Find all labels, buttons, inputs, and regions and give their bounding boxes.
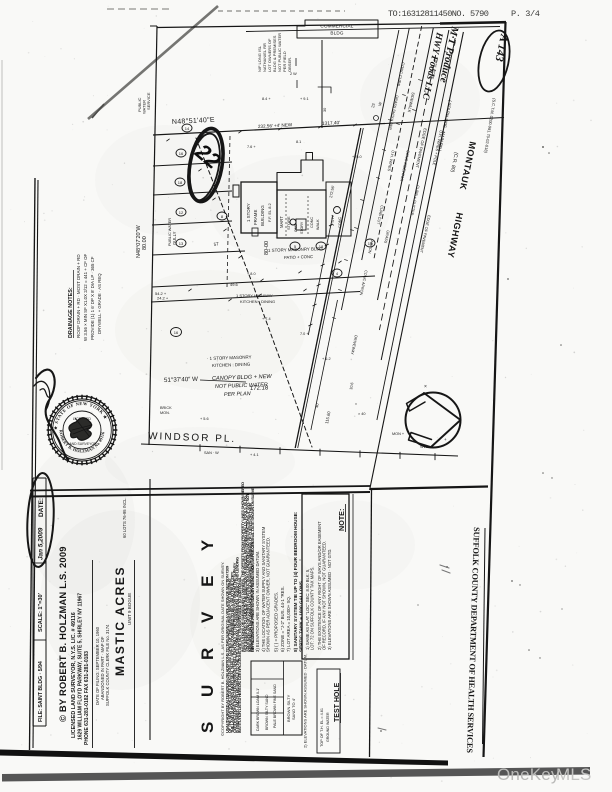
- svg-text:5) ( ) = PROPOSED GRADE: 5) ( ) = PROPOSED GRADES.: [274, 592, 279, 652]
- svg-text:TO:16312811450NO. 5790: TO:16312811450NO. 5790: [388, 9, 489, 19]
- svg-text:GULLY: GULLY: [172, 231, 177, 245]
- svg-text:S U R V E Y: S U R V E Y: [198, 530, 217, 733]
- svg-text:STORY: STORY: [300, 221, 304, 234]
- svg-text:PATIO + CONC: PATIO + CONC: [284, 254, 313, 260]
- svg-text:W 3.56 × MIN SF X1.0X 2/12 = 4: W 3.56 × MIN SF X1.0X 2/12 = 441 + CF OF: [83, 253, 88, 341]
- svg-text:UNIT 9 BOGUE: UNIT 9 BOGUE: [127, 593, 132, 625]
- svg-text:1 STORY: 1 STORY: [246, 203, 251, 222]
- svg-text:18: 18: [319, 244, 324, 249]
- svg-text:16: 16: [174, 330, 179, 335]
- svg-text:OBSER.: OBSER.: [287, 57, 292, 72]
- svg-text:SAND TO 4′: SAND TO 4′: [291, 698, 296, 720]
- svg-text:SHOWN AS PER ADJACENT OWNER, N: SHOWN AS PER ADJACENT OWNER, NOT GUARANT…: [266, 537, 271, 652]
- svg-text:KITCHEN · DINING: KITCHEN · DINING: [240, 299, 275, 304]
- svg-text:80.00: 80.00: [142, 236, 148, 250]
- svg-text:16: 16: [179, 151, 184, 156]
- svg-text:SUFFOLK COUNTY CLERK FILE No.: SUFFOLK COUNTY CLERK FILE No. 3174: [105, 624, 110, 706]
- svg-text:SCALE: 1″=30′: SCALE: 1″=30′: [38, 592, 44, 632]
- svg-text:SAN · W: SAN · W: [204, 451, 219, 455]
- svg-text:FILE: SAINT BLDG · 5/94: FILE: SAINT BLDG · 5/94: [38, 661, 44, 722]
- svg-text:×: ×: [424, 384, 427, 390]
- svg-text:OneKey: OneKey: [497, 765, 560, 784]
- svg-text:3) ELEVATIONS ARE SHOWN ASSUME: 3) ELEVATIONS ARE SHOWN ASSUMED · NOT GT…: [327, 549, 332, 650]
- svg-text:MART: MART: [279, 216, 284, 228]
- svg-text:× 40: × 40: [358, 412, 366, 416]
- svg-text:7.0 +: 7.0 +: [300, 332, 309, 336]
- svg-text:3) ELEVATIONS ARE SHOWN IN ASS: 3) ELEVATIONS ARE SHOWN IN ASSUMED DATUM…: [255, 551, 260, 652]
- svg-text:LICENSED LAND SURVEYOR, N.Y: LICENSED LAND SURVEYOR, N.Y.S. LIC. # 49…: [71, 612, 77, 738]
- svg-text:30: 30: [323, 108, 327, 112]
- svg-text:2) ELEVATIONS ARE SHOWN ASSUME: 2) ELEVATIONS ARE SHOWN ASSUMED · DATUM: [303, 655, 308, 748]
- svg-text:BUILDING: BUILDING: [260, 205, 265, 226]
- svg-text:Jan 5,2009: Jan 5,2009: [38, 527, 45, 560]
- svg-text:2 W: 2 W: [290, 72, 297, 76]
- svg-text:DRYWELL + GRADE · AS REQ: DRYWELL + GRADE · AS REQ: [97, 273, 102, 334]
- svg-text:ROOF DRAIN + RD · MOST DRAIN +: ROOF DRAIN + RD · MOST DRAIN + RD: [76, 254, 81, 338]
- svg-text:F.F. EL 8.2: F.F. EL 8.2: [267, 202, 272, 222]
- svg-text:+: +: [444, 437, 447, 442]
- svg-text:SEPTIC TANK = 1000 GALLONS.: SEPTIC TANK = 1000 GALLONS.: [299, 580, 304, 652]
- svg-text:60 LOTS 76-95 INCL.: 60 LOTS 76-95 INCL.: [122, 498, 127, 539]
- svg-text:WALK: WALK: [316, 219, 320, 230]
- svg-text:PER PLAN: PER PLAN: [224, 391, 251, 398]
- svg-text:6) ZONE = “J-2” BUS. 44-1: 6) ZONE = “J-2” BUS. 44-1 “RES.: [280, 586, 285, 652]
- svg-text:PUBLIC WATER: PUBLIC WATER: [168, 218, 172, 246]
- svg-text:8.1: 8.1: [296, 140, 301, 144]
- svg-text:+ 5.6: + 5.6: [200, 417, 209, 421]
- svg-text:+ 4.1: + 4.1: [250, 453, 259, 457]
- svg-text:BROWN SILTY SAND: BROWN SILTY SAND: [265, 694, 269, 730]
- svg-text:MLS: MLS: [556, 765, 592, 784]
- svg-text:172.18: 172.18: [250, 385, 269, 392]
- svg-text:NOTE:: NOTE:: [337, 509, 346, 531]
- svg-text:7.6 +: 7.6 +: [247, 145, 256, 149]
- svg-text:+25.0: +25.0: [352, 155, 362, 159]
- svg-text:PALE BROWN FINE SAND: PALE BROWN FINE SAND: [273, 684, 277, 728]
- svg-text:GROUND WATER: GROUND WATER: [326, 712, 330, 742]
- svg-text:SERVICE: SERVICE: [146, 92, 151, 110]
- svg-text:TEST HOLE: TEST HOLE: [334, 682, 341, 722]
- svg-text:ONE: ONE: [294, 224, 298, 232]
- svg-text:24.2 +: 24.2 +: [157, 296, 169, 301]
- svg-text:BRICK: BRICK: [160, 406, 172, 410]
- svg-text:12: 12: [179, 210, 184, 215]
- svg-text:© BY ROBERT B. HOLZMAN: © BY ROBERT B. HOLZMAN L.S. 2009: [57, 546, 68, 722]
- svg-text:DRAINAGE NOTES:: DRAINAGE NOTES:: [68, 287, 74, 338]
- svg-text:14: 14: [185, 126, 190, 131]
- svg-text:+ 7.4: + 7.4: [262, 317, 271, 321]
- svg-text:1 STORY HIGHWAY: 1 STORY HIGHWAY: [236, 293, 273, 298]
- svg-text:MON.: MON.: [160, 411, 170, 415]
- svg-text:MON +: MON +: [392, 432, 405, 436]
- svg-text:1317.40′: 1317.40′: [322, 120, 341, 127]
- svg-text:7) LOT AREA = 10,000+ SQ.: 7) LOT AREA = 10,000+ SQ.: [286, 596, 291, 652]
- svg-text:MASTIC ACRES: MASTIC ACRES: [113, 566, 127, 676]
- svg-text:CONC: CONC: [310, 217, 314, 228]
- svg-text:DARK BROWN LOAM 0-1′: DARK BROWN LOAM 0-1′: [256, 688, 260, 731]
- svg-text:OF RECORD, IF ANY NOT SHOWN, N: OF RECORD, IF ANY NOT SHOWN, NOT GUARANT…: [322, 541, 327, 650]
- svg-text:COMMERCIAL: COMMERCIAL: [320, 24, 353, 29]
- svg-text:LOT: 72 ON SUFFOLK COUNTY T: LOT: 72 ON SUFFOLK COUNTY TAX MAPS.: [310, 566, 315, 650]
- svg-text:FRAME: FRAME: [253, 210, 258, 225]
- svg-text:DATE:: DATE:: [38, 498, 45, 517]
- svg-text:+ 6.2: + 6.2: [322, 357, 331, 361]
- svg-text:1629 WILLIAM FLOYD PARKWAY, SU: 1629 WILLIAM FLOYD PARKWAY, SUITE 5, SHI…: [78, 593, 84, 740]
- svg-text:49.6: 49.6: [230, 282, 239, 287]
- svg-text:13: 13: [179, 241, 184, 246]
- svg-text:P. 3/4: P. 3/4: [511, 9, 540, 19]
- svg-text:8) SANITARY SYSTEM TIE UP TO (: 8) SANITARY SYSTEM TIE UP TO (4) FOUR BE…: [293, 511, 298, 652]
- svg-text:18: 18: [178, 180, 183, 185]
- svg-text:PROVIDE (1) 1 6′ DP X 8′ DIA L: PROVIDE (1) 1 6′ DP X 8′ DIA LP · 365 CF: [90, 256, 95, 340]
- svg-text:BLDG: BLDG: [330, 31, 344, 36]
- svg-text:OF RECORD, IF ANY NOT SHOWN, N: OF RECORD, IF ANY NOT SHOWN, NOT GUARANT…: [250, 542, 255, 652]
- svg-text:+ 9.1: + 9.1: [300, 97, 309, 101]
- svg-text:+ 8.0: + 8.0: [247, 272, 256, 276]
- svg-text:PHONE 631-281-0182 FAX 631-: PHONE 631-281-0182 FAX 631-281-0183: [84, 651, 90, 745]
- svg-text:LAND SURVEYOR: LAND SURVEYOR: [68, 442, 98, 446]
- svg-text:TOP OF T.H. EL = 4.61: TOP OF T.H. EL = 4.61: [320, 708, 324, 747]
- svg-text:8.4 +: 8.4 +: [262, 97, 271, 101]
- svg-text:51°37′40″ W: 51°37′40″ W: [164, 376, 198, 384]
